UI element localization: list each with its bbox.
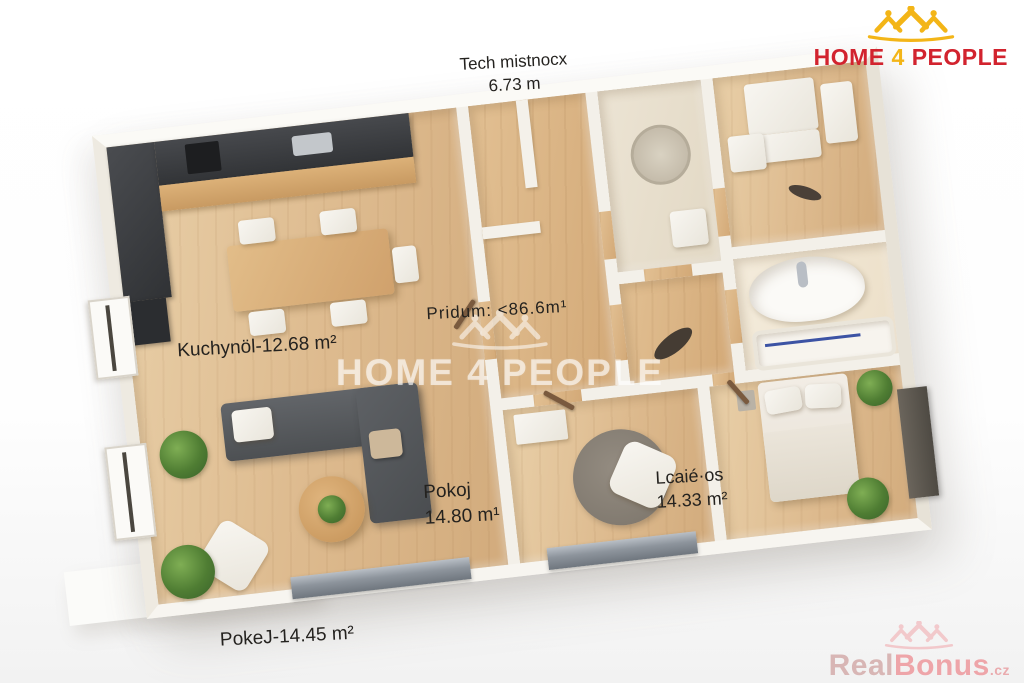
label-room-center: Pokoj 14.80 m¹ bbox=[423, 476, 501, 531]
white-side-chair bbox=[820, 81, 859, 144]
label-bedroom-area: 14.33 m² bbox=[656, 486, 728, 514]
realbonus-text: RealBonus.cz bbox=[829, 651, 1010, 681]
room-bathroom bbox=[733, 242, 899, 371]
room-top-right bbox=[712, 61, 884, 247]
blanket bbox=[763, 423, 860, 503]
label-bedroom-title: Lcaié·os bbox=[655, 462, 727, 490]
window bbox=[88, 296, 139, 380]
dining-chair bbox=[392, 245, 420, 283]
sofa-cushion bbox=[231, 407, 274, 443]
room-tech bbox=[597, 80, 721, 273]
sofa-cushion-beige bbox=[368, 428, 403, 459]
dark-decor bbox=[650, 322, 697, 365]
room-corridor bbox=[619, 273, 734, 384]
logo-people: PEOPLE bbox=[912, 44, 1008, 70]
realbonus-tld: .cz bbox=[990, 662, 1010, 678]
label-room-bottom: PokeJ-14.45 m² bbox=[219, 621, 354, 654]
dining-chair bbox=[329, 299, 367, 327]
washer bbox=[669, 208, 709, 248]
label-room-center-title: Pokoj bbox=[423, 476, 499, 506]
home4people-logo: HOME 4 PEOPLE bbox=[814, 6, 1008, 71]
label-bedroom: Lcaié·os 14.33 m² bbox=[655, 462, 728, 514]
shower-drain bbox=[628, 122, 694, 188]
crown-houses-icon bbox=[875, 621, 963, 651]
floor-plant bbox=[157, 428, 210, 481]
label-tech-room: Tech mistnocx 6.73 m bbox=[459, 48, 569, 99]
kitchen-stove bbox=[185, 141, 222, 175]
dining-chair bbox=[238, 217, 276, 245]
logo-four: 4 bbox=[892, 44, 905, 70]
crown-houses-icon bbox=[855, 6, 967, 44]
pillow bbox=[805, 383, 842, 409]
white-pouf bbox=[727, 133, 767, 173]
dresser bbox=[513, 409, 568, 445]
realbonus-real: Real bbox=[829, 649, 894, 682]
dining-chair bbox=[319, 208, 357, 236]
logo-text: HOME 4 PEOPLE bbox=[814, 44, 1008, 71]
realbonus-watermark: RealBonus.cz bbox=[829, 621, 1010, 681]
logo-home: HOME bbox=[814, 44, 885, 70]
dark-decor bbox=[787, 182, 823, 204]
label-room-center-area: 14.80 m¹ bbox=[424, 502, 500, 532]
floor-plan bbox=[92, 47, 932, 619]
realbonus-bonus: Bonus bbox=[894, 649, 990, 682]
bedroom-plant bbox=[855, 368, 895, 408]
white-sofa-back bbox=[743, 77, 818, 137]
bath-sink bbox=[746, 251, 868, 328]
